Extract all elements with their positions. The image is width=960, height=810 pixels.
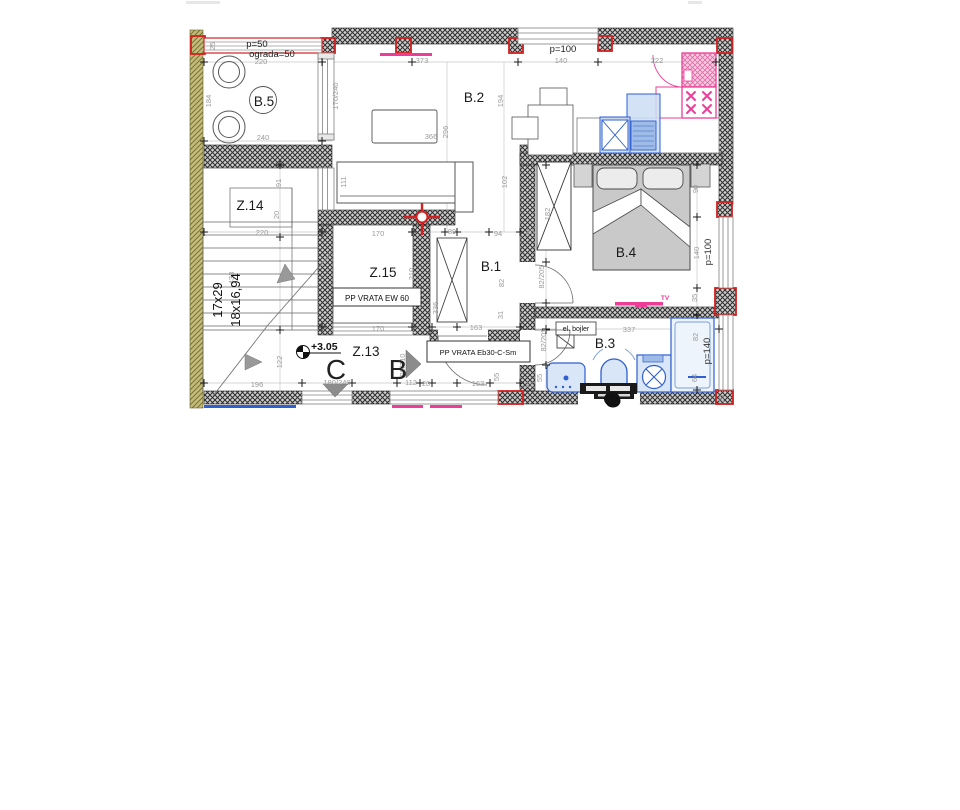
dimension-label: 90 [691, 185, 700, 193]
dimension-label: 82/205 [539, 329, 548, 352]
dimension-label: 194 [496, 95, 505, 108]
dimension-label: 35 [690, 294, 699, 302]
dimension-label: 20 [272, 211, 281, 219]
dimension-label: 111 [339, 176, 348, 187]
dimension-label: 373 [416, 56, 429, 65]
dimension-label: 366 [425, 132, 438, 141]
parapet-bedroom-window-label: p=100 [703, 239, 714, 266]
parapet-bath-window-label: p=140 [702, 338, 713, 365]
nightstand-right [691, 164, 710, 187]
dimension-label: 25 [526, 227, 534, 236]
boiler-label: el. bojler [563, 326, 590, 333]
dimension-label: 55 [535, 374, 544, 382]
plus-tick [594, 58, 602, 66]
tv-label: TV [661, 295, 670, 302]
pillow [643, 168, 683, 189]
railing-label: ograda=50 [249, 49, 295, 60]
stair-count-label: 17x29 [210, 282, 225, 317]
bathroom-sink [547, 363, 585, 392]
room-label-b3: B.3 [595, 336, 615, 351]
dimension-label: 296 [441, 126, 450, 139]
plus-tick [514, 58, 522, 66]
dimension-label: 25 [208, 42, 217, 50]
dimension-label: 240 [257, 133, 270, 142]
dimension-label: 82 [691, 333, 700, 341]
parapet-top-window-label: p=100 [550, 44, 577, 55]
hall-wardrobe [437, 238, 467, 322]
corner-pillar [191, 36, 205, 54]
plus-tick [276, 233, 284, 241]
dimension-label: 20 [422, 379, 430, 388]
plus-tick [542, 299, 550, 307]
stair-step-label: 18x16,94 [228, 273, 243, 327]
room-label-b1: B.1 [481, 259, 501, 274]
dimension-label: 210 [407, 268, 416, 281]
plus-tick [298, 379, 306, 387]
dimension-label: 140 [555, 56, 568, 65]
dimension-label: 64 [690, 374, 699, 382]
plus-tick [485, 228, 493, 236]
cropped-edge-artifacts [186, 1, 702, 4]
dimension-label: 89 [448, 227, 456, 236]
plus-tick [276, 326, 284, 334]
dimension-label: 182 [543, 208, 552, 221]
dimension-label: 102 [500, 176, 509, 189]
stair-direction-arrows [245, 264, 295, 370]
section-b-arrow [406, 350, 421, 378]
bedroom-wardrobe [537, 162, 571, 250]
dimension-label: 82/205 [537, 266, 546, 289]
plus-tick [693, 284, 701, 292]
elevator-door-label: PP VRATA EW 60 [345, 294, 410, 303]
dimension-label: 184 [204, 95, 213, 108]
dimension-label: 91 [274, 179, 283, 187]
entry-fire-door-label: PP VRATA Eb30-C-Sm [440, 348, 517, 357]
floor-plan-drawing: 22037314022225184240170/2401942963661111… [0, 0, 960, 810]
dimension-label: 140 [692, 247, 701, 260]
dimension-label: 170 [372, 229, 385, 238]
dimension-label: 222 [651, 56, 664, 65]
room-label-b2: B.2 [464, 90, 484, 105]
dimension-label: 25 [526, 380, 534, 389]
dimension-label: 55 [492, 373, 501, 381]
dimension-label: 163 [470, 323, 483, 332]
plus-tick [542, 258, 550, 266]
dimension-label: 337 [623, 325, 636, 334]
dimension-label: 94 [494, 229, 502, 238]
pillow [597, 168, 637, 189]
section-b-label: B [389, 354, 408, 385]
plus-tick [693, 213, 701, 221]
dimension-label: 31 [496, 311, 505, 319]
room-label-b5: B.5 [254, 94, 274, 109]
dimension-label: 170 [372, 324, 385, 333]
stove [682, 87, 716, 118]
dimension-label: 122 [275, 356, 284, 369]
section-c-label: C [326, 354, 346, 385]
dimension-label: 82 [497, 279, 506, 287]
sofa [337, 162, 473, 212]
dimension-label: 170/240 [331, 82, 340, 109]
kitchen-sink [600, 117, 656, 153]
room-label-z14: Z.14 [236, 198, 264, 213]
insulation-strip [190, 30, 203, 408]
dimension-label: 163 [472, 379, 485, 388]
dimension-label: 196 [251, 380, 264, 389]
room-label-b4: B.4 [616, 245, 637, 260]
room-label-z13: Z.13 [352, 344, 379, 359]
door-knob [604, 392, 620, 406]
floor-plan-canvas: 22037314022225184240170/2401942963661111… [0, 0, 960, 810]
room-label-z15: Z.15 [369, 265, 396, 280]
plus-tick [453, 323, 461, 331]
elevation-label: +3.05 [311, 341, 338, 353]
dimension-label: 336 [431, 302, 440, 315]
dimension-label: 220 [256, 228, 269, 237]
dimension-label: 20 [717, 395, 726, 403]
tv-wall-mount [615, 302, 663, 308]
plus-tick [453, 379, 461, 387]
washing-machine [637, 355, 671, 392]
nightstand-left [574, 164, 592, 187]
staircase [203, 165, 332, 396]
bed [574, 164, 710, 270]
